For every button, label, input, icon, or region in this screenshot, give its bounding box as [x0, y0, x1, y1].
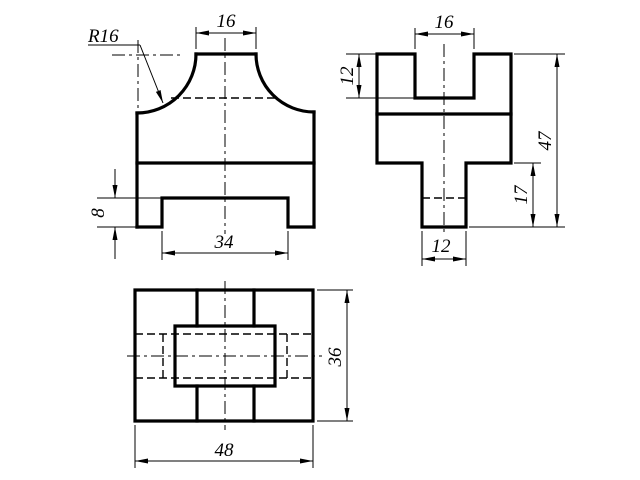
dim-label-side-notch-depth: 12 [337, 66, 358, 86]
dim-label-side-stem-height: 17 [511, 184, 532, 205]
front-view: R16 16 8 34 [87, 11, 314, 260]
dim-label-side-notch-width: 16 [435, 12, 455, 33]
dim-label-front-slot-height: 8 [88, 208, 109, 218]
dim-label-front-slot-width: 34 [214, 232, 235, 253]
dim-label-side-stem-width: 12 [432, 236, 452, 257]
front-fillet-arc-left [137, 54, 196, 113]
dim-label-side-total-height: 47 [535, 130, 556, 151]
drawing-canvas: R16 16 8 34 16 12 47 [0, 0, 640, 480]
front-fillet-arc-right [256, 54, 314, 112]
radius-callout-label: R16 [87, 26, 119, 47]
side-view: 16 12 47 17 12 [337, 12, 565, 266]
dim-label-top-overall-width: 48 [215, 440, 235, 461]
top-view: 48 36 [127, 281, 353, 468]
radius-leader-arrow [140, 45, 163, 103]
drawing-sheet: R16 16 8 34 16 12 47 [0, 0, 640, 480]
dim-label-top-overall-depth: 36 [325, 347, 346, 368]
dim-label-front-top-width: 16 [217, 11, 237, 32]
